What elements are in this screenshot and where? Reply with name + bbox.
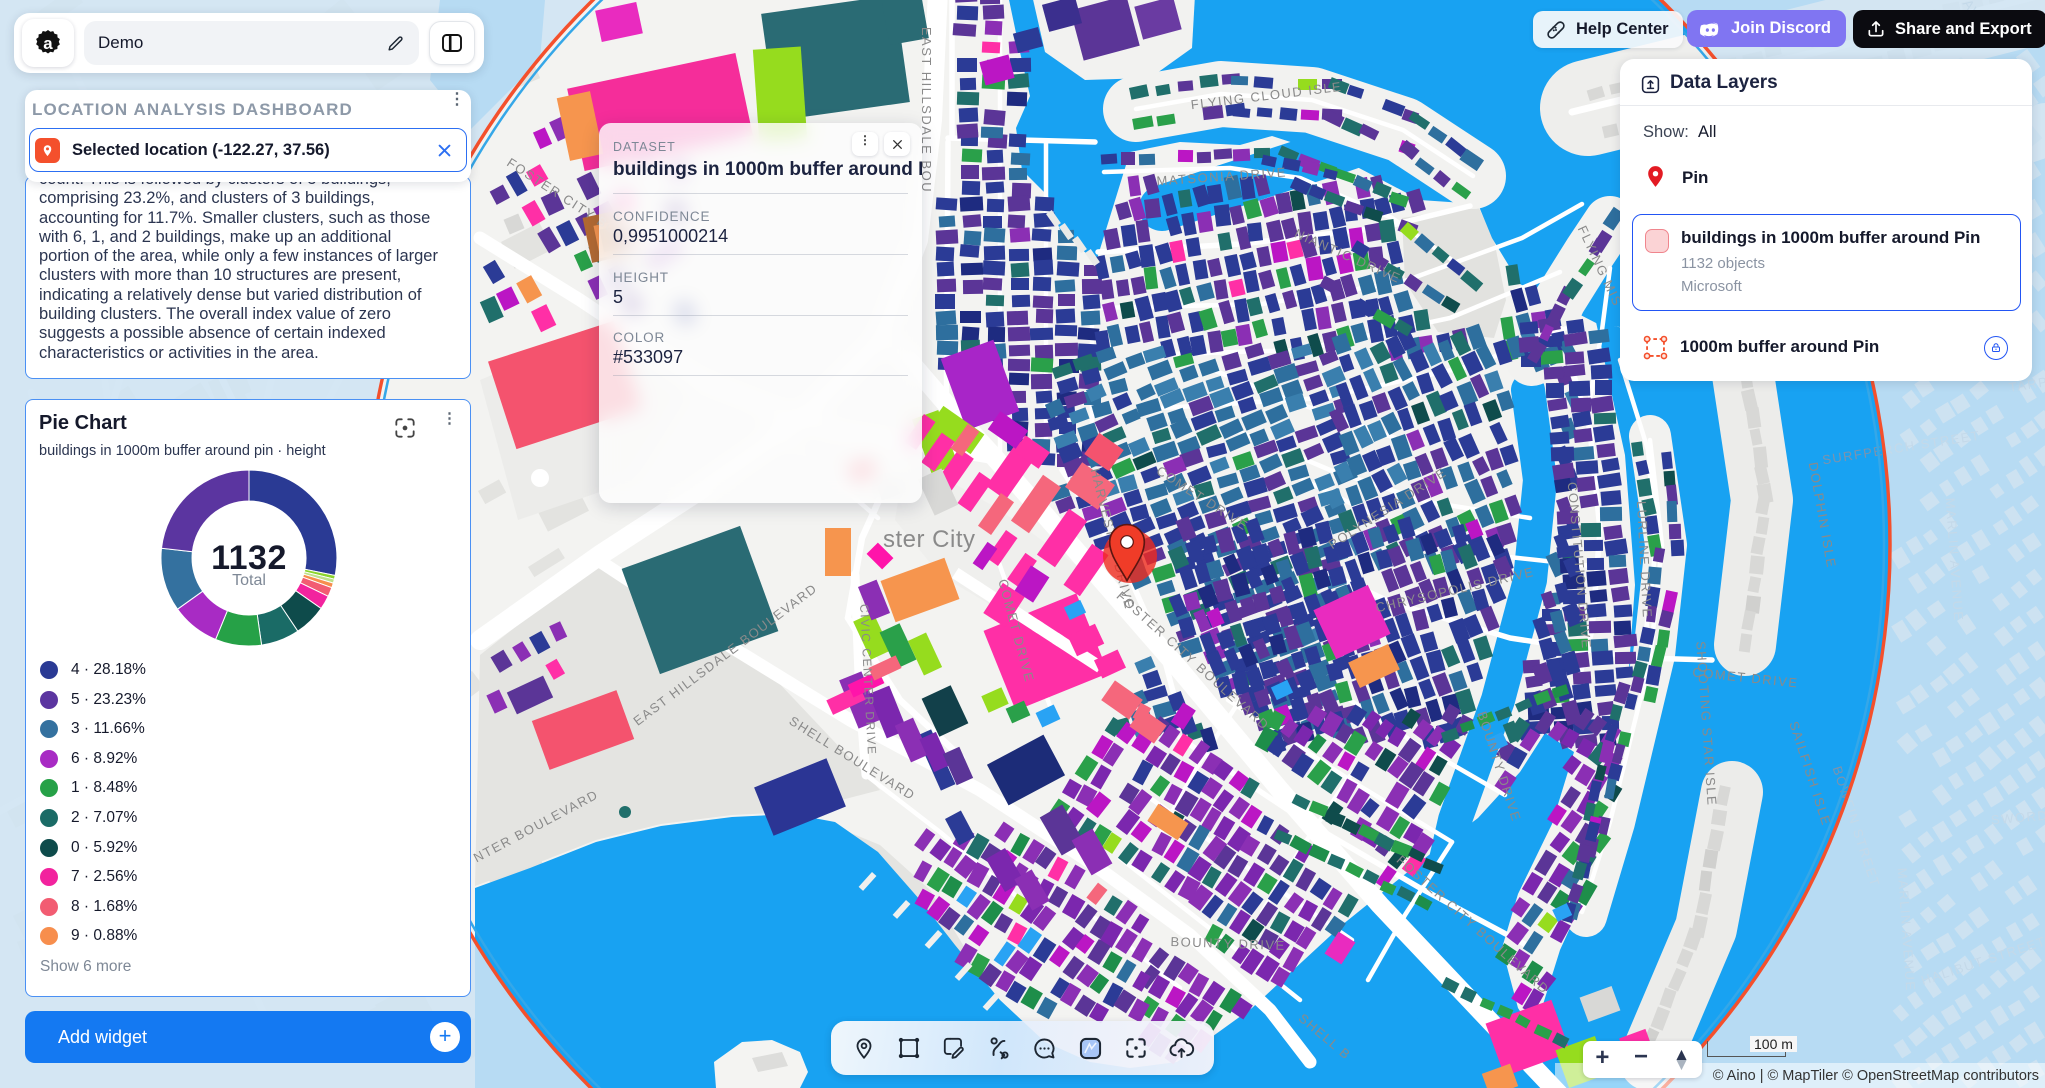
- svg-text:ster City: ster City: [883, 526, 976, 553]
- svg-text:a: a: [43, 34, 53, 53]
